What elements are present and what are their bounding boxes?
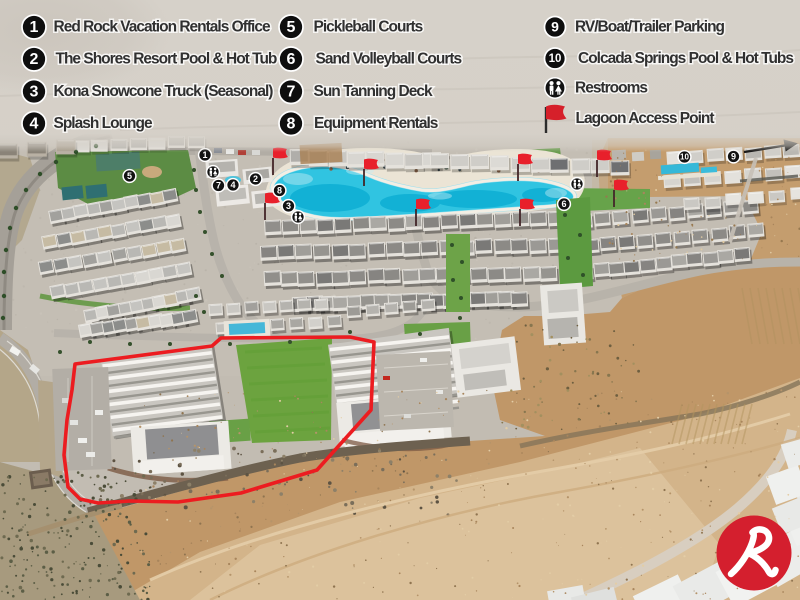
svg-text:Red Rock Vacation Rentals Offi: Red Rock Vacation Rentals Office xyxy=(54,19,271,36)
svg-text:Pickleball Courts: Pickleball Courts xyxy=(314,19,423,36)
svg-text:6: 6 xyxy=(561,199,566,209)
svg-text:Sun Tanning Deck: Sun Tanning Deck xyxy=(314,83,433,100)
svg-text:Colcada Springs Pool & Hot Tub: Colcada Springs Pool & Hot Tubs xyxy=(578,50,793,67)
svg-text:10: 10 xyxy=(680,153,689,162)
svg-text:The Shores Resort Pool & Hot T: The Shores Resort Pool & Hot Tub xyxy=(56,51,277,68)
svg-text:6: 6 xyxy=(287,51,296,68)
svg-text:7: 7 xyxy=(216,180,221,190)
svg-text:4: 4 xyxy=(30,115,39,132)
svg-text:4: 4 xyxy=(230,180,235,190)
svg-text:5: 5 xyxy=(287,19,296,36)
svg-text:9: 9 xyxy=(731,151,736,161)
svg-text:3: 3 xyxy=(286,201,291,211)
svg-text:RV/Boat/Trailer Parking: RV/Boat/Trailer Parking xyxy=(575,19,725,36)
svg-text:8: 8 xyxy=(287,115,296,132)
svg-text:3: 3 xyxy=(30,83,39,100)
svg-text:1: 1 xyxy=(30,19,39,36)
svg-text:Sand Volleyball Courts: Sand Volleyball Courts xyxy=(316,51,462,68)
svg-text:Splash Lounge: Splash Lounge xyxy=(54,115,153,132)
svg-text:7: 7 xyxy=(287,83,296,100)
svg-text:Lagoon Access Point: Lagoon Access Point xyxy=(576,110,715,127)
svg-text:2: 2 xyxy=(253,174,258,184)
svg-text:Kona Snowcone Truck (Seasonal): Kona Snowcone Truck (Seasonal) xyxy=(54,83,274,100)
svg-text:2: 2 xyxy=(30,51,39,68)
svg-text:8: 8 xyxy=(277,185,282,195)
svg-text:Restrooms: Restrooms xyxy=(575,80,647,97)
svg-text:Equipment Rentals: Equipment Rentals xyxy=(314,115,438,132)
svg-text:5: 5 xyxy=(127,171,132,181)
svg-text:10: 10 xyxy=(549,53,562,65)
svg-text:9: 9 xyxy=(551,18,559,34)
